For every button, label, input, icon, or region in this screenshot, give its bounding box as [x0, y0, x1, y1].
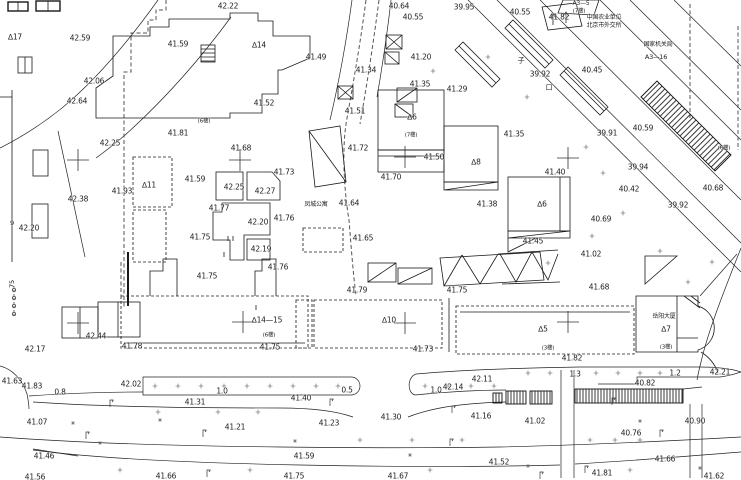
elevation-label: 41.23 — [319, 419, 339, 427]
elevation-label: 42.64 — [67, 97, 87, 105]
elevation-label: 42.19 — [251, 245, 271, 253]
label-bldg: 国家机关局 — [643, 42, 672, 48]
elevation-label: 41.30 — [381, 413, 401, 421]
elevation-label: 40.90 — [685, 417, 705, 425]
elevation-label: 41.64 — [339, 199, 359, 207]
elevation-label: 41.75 — [447, 286, 467, 294]
elevation-label: 40.69 — [591, 215, 611, 223]
elevation-label: 40.55 — [510, 8, 530, 16]
label-floors: (3楼) — [660, 345, 673, 351]
elevation-label: 40.68 — [703, 184, 723, 192]
elevation-label: 42.17 — [25, 345, 45, 353]
elevation-label: 41.35 — [410, 80, 430, 88]
label-ref: ∆6 — [537, 200, 546, 208]
elevation-label: 41.73 — [413, 345, 433, 353]
elevation-label: 41.77 — [209, 204, 229, 212]
elevation-label: 42.21 — [710, 368, 730, 376]
label-bldg: 北京市外交所 — [587, 23, 622, 29]
survey-map: 42.2240.6440.5539.9540.5541.82A3—5(7楼)中国… — [0, 0, 741, 480]
elevation-label: 39.91 — [597, 129, 617, 137]
elevation-label: 41.75 — [197, 272, 217, 280]
label-ref: ∆10 — [382, 316, 396, 324]
label-floors: (3楼) — [542, 346, 555, 352]
label-ref: ∆17 — [8, 33, 22, 41]
elevation-label: 41.07 — [27, 418, 47, 426]
label-floors: (7楼) — [405, 133, 418, 139]
label-bldg: 凤城公寓 — [304, 202, 327, 208]
elevation-label: 41.59 — [168, 40, 188, 48]
elevation-label: 41.35 — [504, 130, 524, 138]
label-floors: (7楼) — [573, 9, 586, 15]
elevation-label: 40.59 — [633, 124, 653, 132]
elevation-label: 41.45 — [523, 237, 543, 245]
elevation-label: 41.75 — [284, 472, 304, 480]
elevation-label: 41.63 — [2, 377, 22, 385]
elevation-label: 42.14 — [443, 383, 463, 391]
elevation-label: 42.59 — [70, 34, 90, 42]
elevation-label: 40.42 — [619, 185, 639, 193]
elevation-label: 41.75 — [260, 343, 280, 351]
elevation-label: 41.66 — [156, 472, 176, 480]
elevation-label: 41.49 — [306, 53, 326, 61]
elevation-label: 42.38 — [68, 195, 88, 203]
elevation-label: 41.79 — [347, 286, 367, 294]
elevation-label: 41.38 — [477, 200, 497, 208]
elevation-label: 40.55 — [403, 13, 423, 21]
elevation-label: 41.72 — [348, 144, 368, 152]
label-street: 子 — [518, 58, 525, 65]
elevation-label: 39.92 — [668, 201, 688, 209]
label-ref: ∆7 — [661, 325, 670, 333]
elevation-label: 41.81 — [168, 129, 188, 137]
label-dist: 1.2 — [669, 369, 680, 377]
elevation-label: 42.22 — [218, 2, 238, 10]
elevation-label: 41.82 — [549, 13, 569, 21]
label-bldg: 岳阳大厦 — [652, 314, 675, 320]
elevation-label: 41.62 — [704, 472, 724, 480]
elevation-label: 42.20 — [248, 218, 268, 226]
elevation-label: 75 — [9, 280, 16, 288]
elevation-label: 40.76 — [621, 429, 641, 437]
elevation-label: 39.95 — [454, 3, 474, 11]
elevation-label: 41.56 — [25, 473, 45, 480]
elevation-label: 41.81 — [592, 469, 612, 477]
elevation-label: 42.02 — [121, 380, 141, 388]
elevation-label: 41.51 — [345, 107, 365, 115]
elevation-label: 41.68 — [589, 283, 609, 291]
elevation-label: 41.78 — [122, 342, 142, 350]
label-bldg: 中国农业单位 — [587, 15, 622, 21]
label-ref: ∆14—15 — [252, 316, 282, 324]
elevation-label: 41.40 — [545, 168, 565, 176]
elevation-label: 41.46 — [34, 452, 54, 460]
elevation-label: 42.27 — [255, 187, 275, 195]
elevation-label: 41.82 — [562, 354, 582, 362]
label-street: 口 — [546, 85, 553, 92]
elevation-label: 41.83 — [22, 382, 42, 390]
elevation-label: 41.50 — [424, 153, 444, 161]
elevation-label: 41.20 — [411, 53, 431, 61]
elevation-label: 41.40 — [291, 394, 311, 402]
elevation-label: 39.92 — [530, 70, 550, 78]
elevation-label: 41.34 — [356, 66, 376, 74]
elevation-label: 41.66 — [655, 455, 675, 463]
elevation-label: 42.20 — [19, 224, 39, 232]
elevation-label: 41.75 — [190, 233, 210, 241]
elevation-label: 42.44 — [86, 332, 106, 340]
label-ref: ∆14 — [252, 41, 266, 49]
elevation-label: 41.52 — [254, 99, 274, 107]
elevation-label: 41.59 — [185, 175, 205, 183]
elevation-label: 40.82 — [635, 379, 655, 387]
elevation-label: 41.02 — [525, 417, 545, 425]
label-dist: 1.0 — [216, 387, 227, 395]
elevation-label: 39.94 — [628, 163, 648, 171]
elevation-label: 41.76 — [274, 214, 294, 222]
label-dist: 0.8 — [54, 388, 65, 396]
elevation-label: 42.11 — [472, 375, 492, 383]
elevation-label: 42.25 — [224, 183, 244, 191]
elevation-label: 41.65 — [353, 234, 373, 242]
elevation-label: 40.64 — [389, 2, 409, 10]
elevation-label: 9 — [10, 220, 14, 227]
elevation-label: 41.21 — [225, 423, 245, 431]
elevation-label: 41.73 — [274, 168, 294, 176]
elevation-label: 41.02 — [581, 250, 601, 258]
elevation-label: 41.52 — [489, 458, 509, 466]
label-floors: (6楼) — [263, 333, 276, 339]
elevation-label: 41.93 — [112, 187, 132, 195]
label-layer: 42.2240.6440.5539.9540.5541.82A3—5(7楼)中国… — [0, 0, 741, 480]
elevation-label: 41.70 — [381, 173, 401, 181]
label-dist: 1.3 — [569, 370, 580, 378]
elevation-label: 41.29 — [447, 85, 467, 93]
elevation-label: 40.45 — [582, 66, 602, 74]
label-ref: A3—16 — [645, 54, 667, 61]
label-ref: ∆5 — [538, 325, 547, 333]
label-ref: ∆11 — [142, 181, 156, 189]
elevation-label: 42.06 — [84, 77, 104, 85]
label-floors: (6楼) — [198, 119, 211, 125]
label-ref: ∆8 — [471, 158, 480, 166]
elevation-label: 41.31 — [185, 398, 205, 406]
label-ref: A3—5 — [573, 1, 590, 7]
label-dist: 0.5 — [341, 386, 352, 394]
label-floors: (6楼) — [718, 146, 731, 152]
label-ref: ∆6 — [407, 113, 416, 121]
elevation-label: 41.68 — [231, 144, 251, 152]
elevation-label: 42.25 — [100, 139, 120, 147]
elevation-label: 41.76 — [268, 263, 288, 271]
label-dist: 1.0 — [430, 386, 441, 394]
elevation-label: 41.16 — [471, 412, 491, 420]
elevation-label: 41.59 — [294, 452, 314, 460]
elevation-label: 41.67 — [388, 472, 408, 480]
